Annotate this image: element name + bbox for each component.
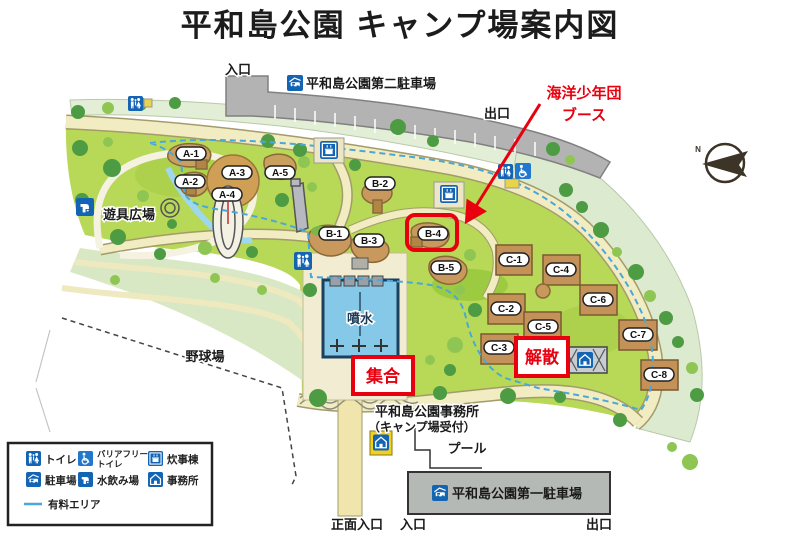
parking-lot2-label: 平和島公園第二駐車場 [306, 76, 436, 91]
svg-text:B-1: B-1 [326, 229, 343, 240]
legend-parking-label: 駐車場 [45, 474, 77, 487]
office-name-label: 平和島公園事務所 [375, 404, 479, 419]
site-pill-a3: A-3 [222, 166, 252, 179]
meet-box: 集合 [353, 357, 413, 394]
small-hut [144, 99, 152, 107]
legend-water-label: 水飲み場 [96, 474, 139, 487]
main-gate-road [338, 398, 362, 516]
parking-icon [432, 485, 448, 501]
svg-text:A-1: A-1 [183, 149, 200, 160]
disperse-label: 解散 [525, 347, 560, 367]
cooking-icon [440, 185, 458, 203]
parking-icon [287, 75, 303, 91]
site-pill-a5: A-5 [265, 166, 295, 179]
path-lines [36, 330, 50, 432]
entrance-bottom-label: 入口 [400, 517, 426, 532]
small-mound [536, 284, 550, 298]
baseball-field-label: 野球場 [185, 349, 224, 364]
fountain-label: 噴水 [347, 311, 374, 326]
svg-text:C-4: C-4 [553, 265, 570, 276]
meet-label: 集合 [365, 366, 401, 386]
park-guide-map: 平和島公園第一駐車場 A-1 A-2 A-3 A-4 A-5 B-1 B-2 B… [0, 0, 800, 542]
compass: N [695, 144, 748, 182]
compass-north-label: N [695, 145, 701, 154]
legend-barrier-free-label-2: トイレ [97, 459, 123, 469]
parking-lot1-label: 平和島公園第一駐車場 [452, 486, 582, 501]
legend: トイレ バリアフリー トイレ 炊事棟 駐車場 水飲み場 事務所 有料エリア [8, 443, 212, 525]
site-pill-c1: C-1 [499, 253, 529, 266]
water-fountain-icon [78, 472, 93, 487]
svg-text:A-5: A-5 [272, 168, 289, 179]
cooking-icon [320, 141, 338, 159]
page-title: 平和島公園 キャンプ場案内図 [181, 8, 620, 43]
site-pill-b4: B-4 [418, 227, 448, 240]
svg-text:C-8: C-8 [651, 370, 668, 381]
site-pill-c8: C-8 [644, 368, 674, 381]
legend-toilet-label: トイレ [45, 454, 77, 466]
svg-text:A-4: A-4 [219, 190, 236, 201]
svg-text:C-3: C-3 [491, 343, 508, 354]
toilet-icon [128, 96, 143, 111]
small-hut [505, 179, 519, 188]
legend-paid-area-label: 有料エリア [48, 498, 101, 511]
booth-label-line2: ブース [562, 106, 606, 124]
svg-text:B-3: B-3 [361, 236, 378, 247]
svg-text:C-2: C-2 [498, 304, 515, 315]
reception-office-icon [370, 431, 392, 455]
site-pill-a4: A-4 [212, 188, 242, 201]
toilet-icon [294, 252, 312, 270]
svg-text:A-3: A-3 [229, 168, 246, 179]
parking-icon [26, 472, 41, 487]
site-pill-a2: A-2 [175, 175, 205, 188]
svg-text:A-2: A-2 [182, 177, 199, 188]
bench [352, 258, 368, 269]
site-pill-c3: C-3 [484, 341, 514, 354]
site-pill-c4: C-4 [546, 263, 576, 276]
svg-text:C-7: C-7 [630, 330, 647, 341]
booth-label-line1: 海洋少年団 [546, 84, 621, 102]
office-icon [577, 352, 593, 368]
cooking-icon [148, 451, 163, 466]
site-pill-b2: B-2 [365, 177, 395, 190]
site-pill-b5: B-5 [431, 261, 461, 274]
site-pill-a1: A-1 [176, 147, 206, 160]
main-gate-label: 正面入口 [331, 517, 383, 532]
legend-cooking-label: 炊事棟 [167, 453, 199, 466]
map-canvas: 平和島公園第一駐車場 A-1 A-2 A-3 A-4 A-5 B-1 B-2 B… [0, 0, 800, 542]
site-a1-hut [196, 160, 207, 169]
office-icon [148, 472, 163, 487]
barrier-free-toilet-icon [515, 163, 531, 179]
site-b2-hut [373, 200, 382, 213]
water-fountain-icon [76, 198, 94, 216]
barrier-free-toilet-icon [78, 451, 93, 466]
toilet-icon [26, 451, 41, 466]
svg-text:C-5: C-5 [535, 322, 552, 333]
svg-text:B-2: B-2 [372, 179, 389, 190]
site-pill-c2: C-2 [491, 302, 521, 315]
site-pill-c5: C-5 [528, 320, 558, 333]
legend-office-label: 事務所 [167, 474, 199, 487]
svg-text:B-5: B-5 [438, 263, 455, 274]
legend-barrier-free-label-1: バリアフリー [97, 449, 148, 459]
site-pill-b1: B-1 [319, 227, 349, 240]
exit-top-label: 出口 [484, 106, 510, 121]
exit-bottom-label: 出口 [586, 517, 612, 532]
svg-text:B-4: B-4 [425, 229, 442, 240]
site-pill-c6: C-6 [583, 293, 613, 306]
site-pill-c7: C-7 [623, 328, 653, 341]
svg-text:C-1: C-1 [506, 255, 523, 266]
disperse-box: 解散 [516, 338, 568, 376]
svg-text:C-6: C-6 [590, 295, 607, 306]
parking-lot-1: 平和島公園第一駐車場 [408, 472, 610, 514]
entrance-top-label: 入口 [225, 62, 251, 77]
pool-label: プール [447, 441, 486, 456]
office-note-label: （キャンプ場受付） [368, 419, 476, 434]
playground-label: 遊具広場 [103, 207, 155, 222]
site-pill-b3: B-3 [354, 234, 384, 247]
